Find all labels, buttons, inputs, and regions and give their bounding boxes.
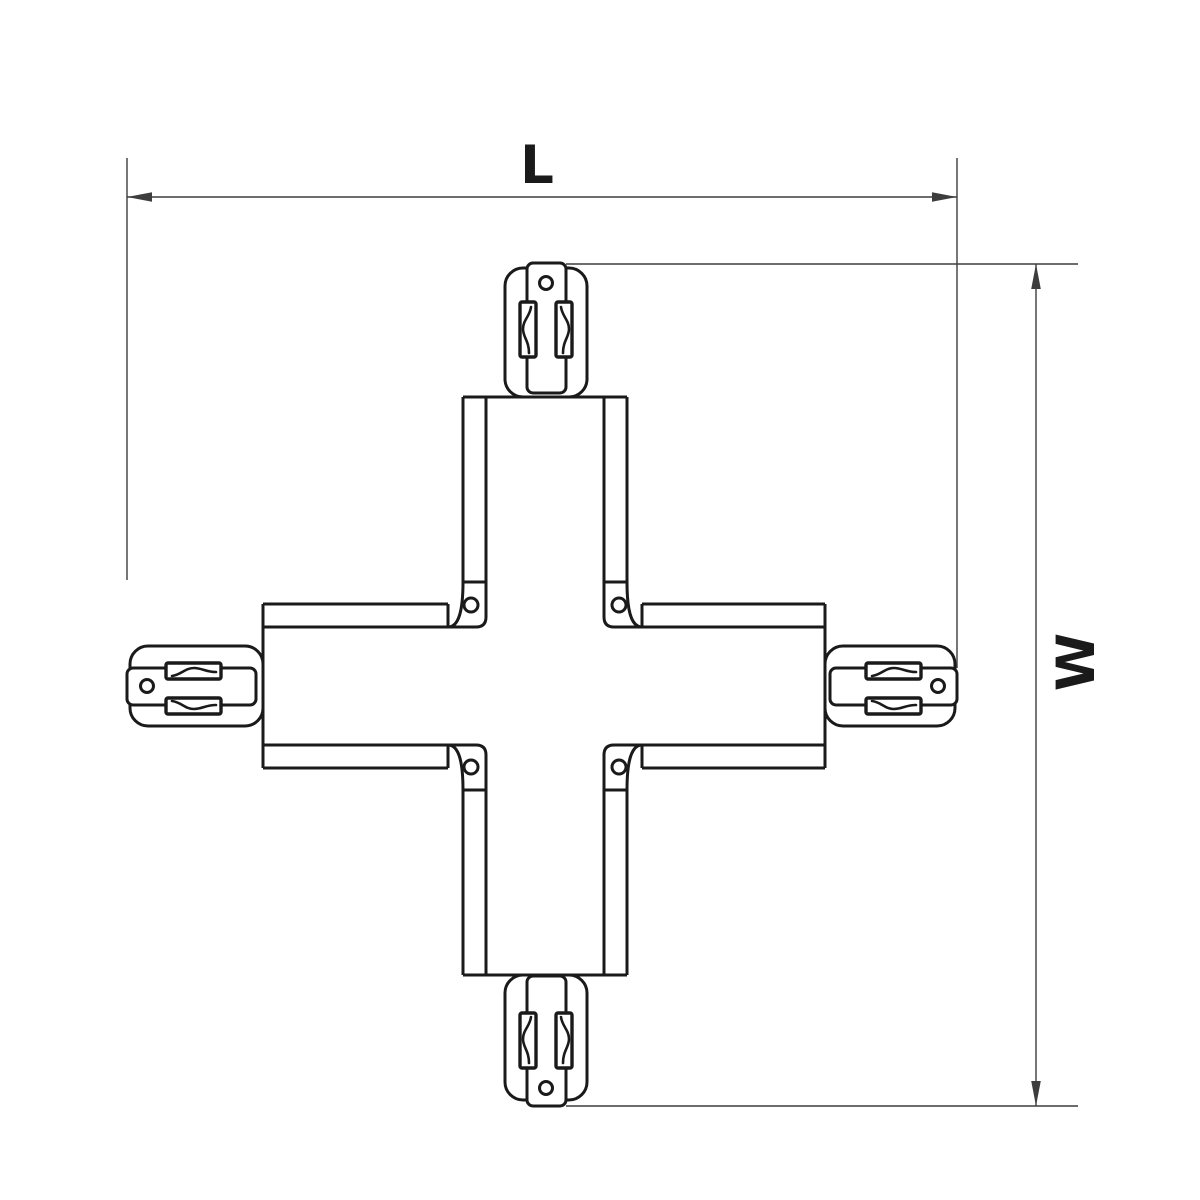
screw-hole-upper-left: [464, 598, 478, 612]
inner-contour-lower-left: [263, 745, 486, 975]
inner-contour-upper-left: [263, 397, 486, 627]
inner-contour-lower-right: [604, 745, 825, 975]
arrowhead-right: [932, 192, 957, 202]
left-connector: [127, 646, 263, 726]
top-connector: [505, 263, 587, 397]
corner-arc-upper-left: [448, 582, 463, 627]
corner-arc-lower-right: [627, 745, 642, 790]
bottom-connector-hole: [540, 1082, 553, 1095]
arrowhead-up: [1031, 264, 1041, 289]
right-connector-hole: [932, 680, 945, 693]
drawing-canvas: L W: [0, 0, 1200, 1200]
bottom-connector: [505, 975, 587, 1106]
width-dimension-label: W: [1046, 633, 1107, 691]
technical-drawing-x-connector: L W: [0, 0, 1200, 1200]
inner-contour-upper-right: [604, 397, 825, 627]
arrowhead-left: [127, 192, 152, 202]
left-connector-hole: [141, 680, 154, 693]
screw-hole-lower-left: [464, 760, 478, 774]
corner-arc-upper-right: [627, 582, 642, 627]
length-dimension-label: L: [520, 135, 554, 196]
cross-body: [263, 397, 825, 975]
arrowhead-down: [1031, 1081, 1041, 1106]
screw-hole-upper-right: [612, 598, 626, 612]
right-connector: [825, 646, 957, 726]
corner-arc-lower-left: [448, 745, 463, 790]
screw-hole-lower-right: [612, 760, 626, 774]
top-connector-hole: [540, 277, 553, 290]
